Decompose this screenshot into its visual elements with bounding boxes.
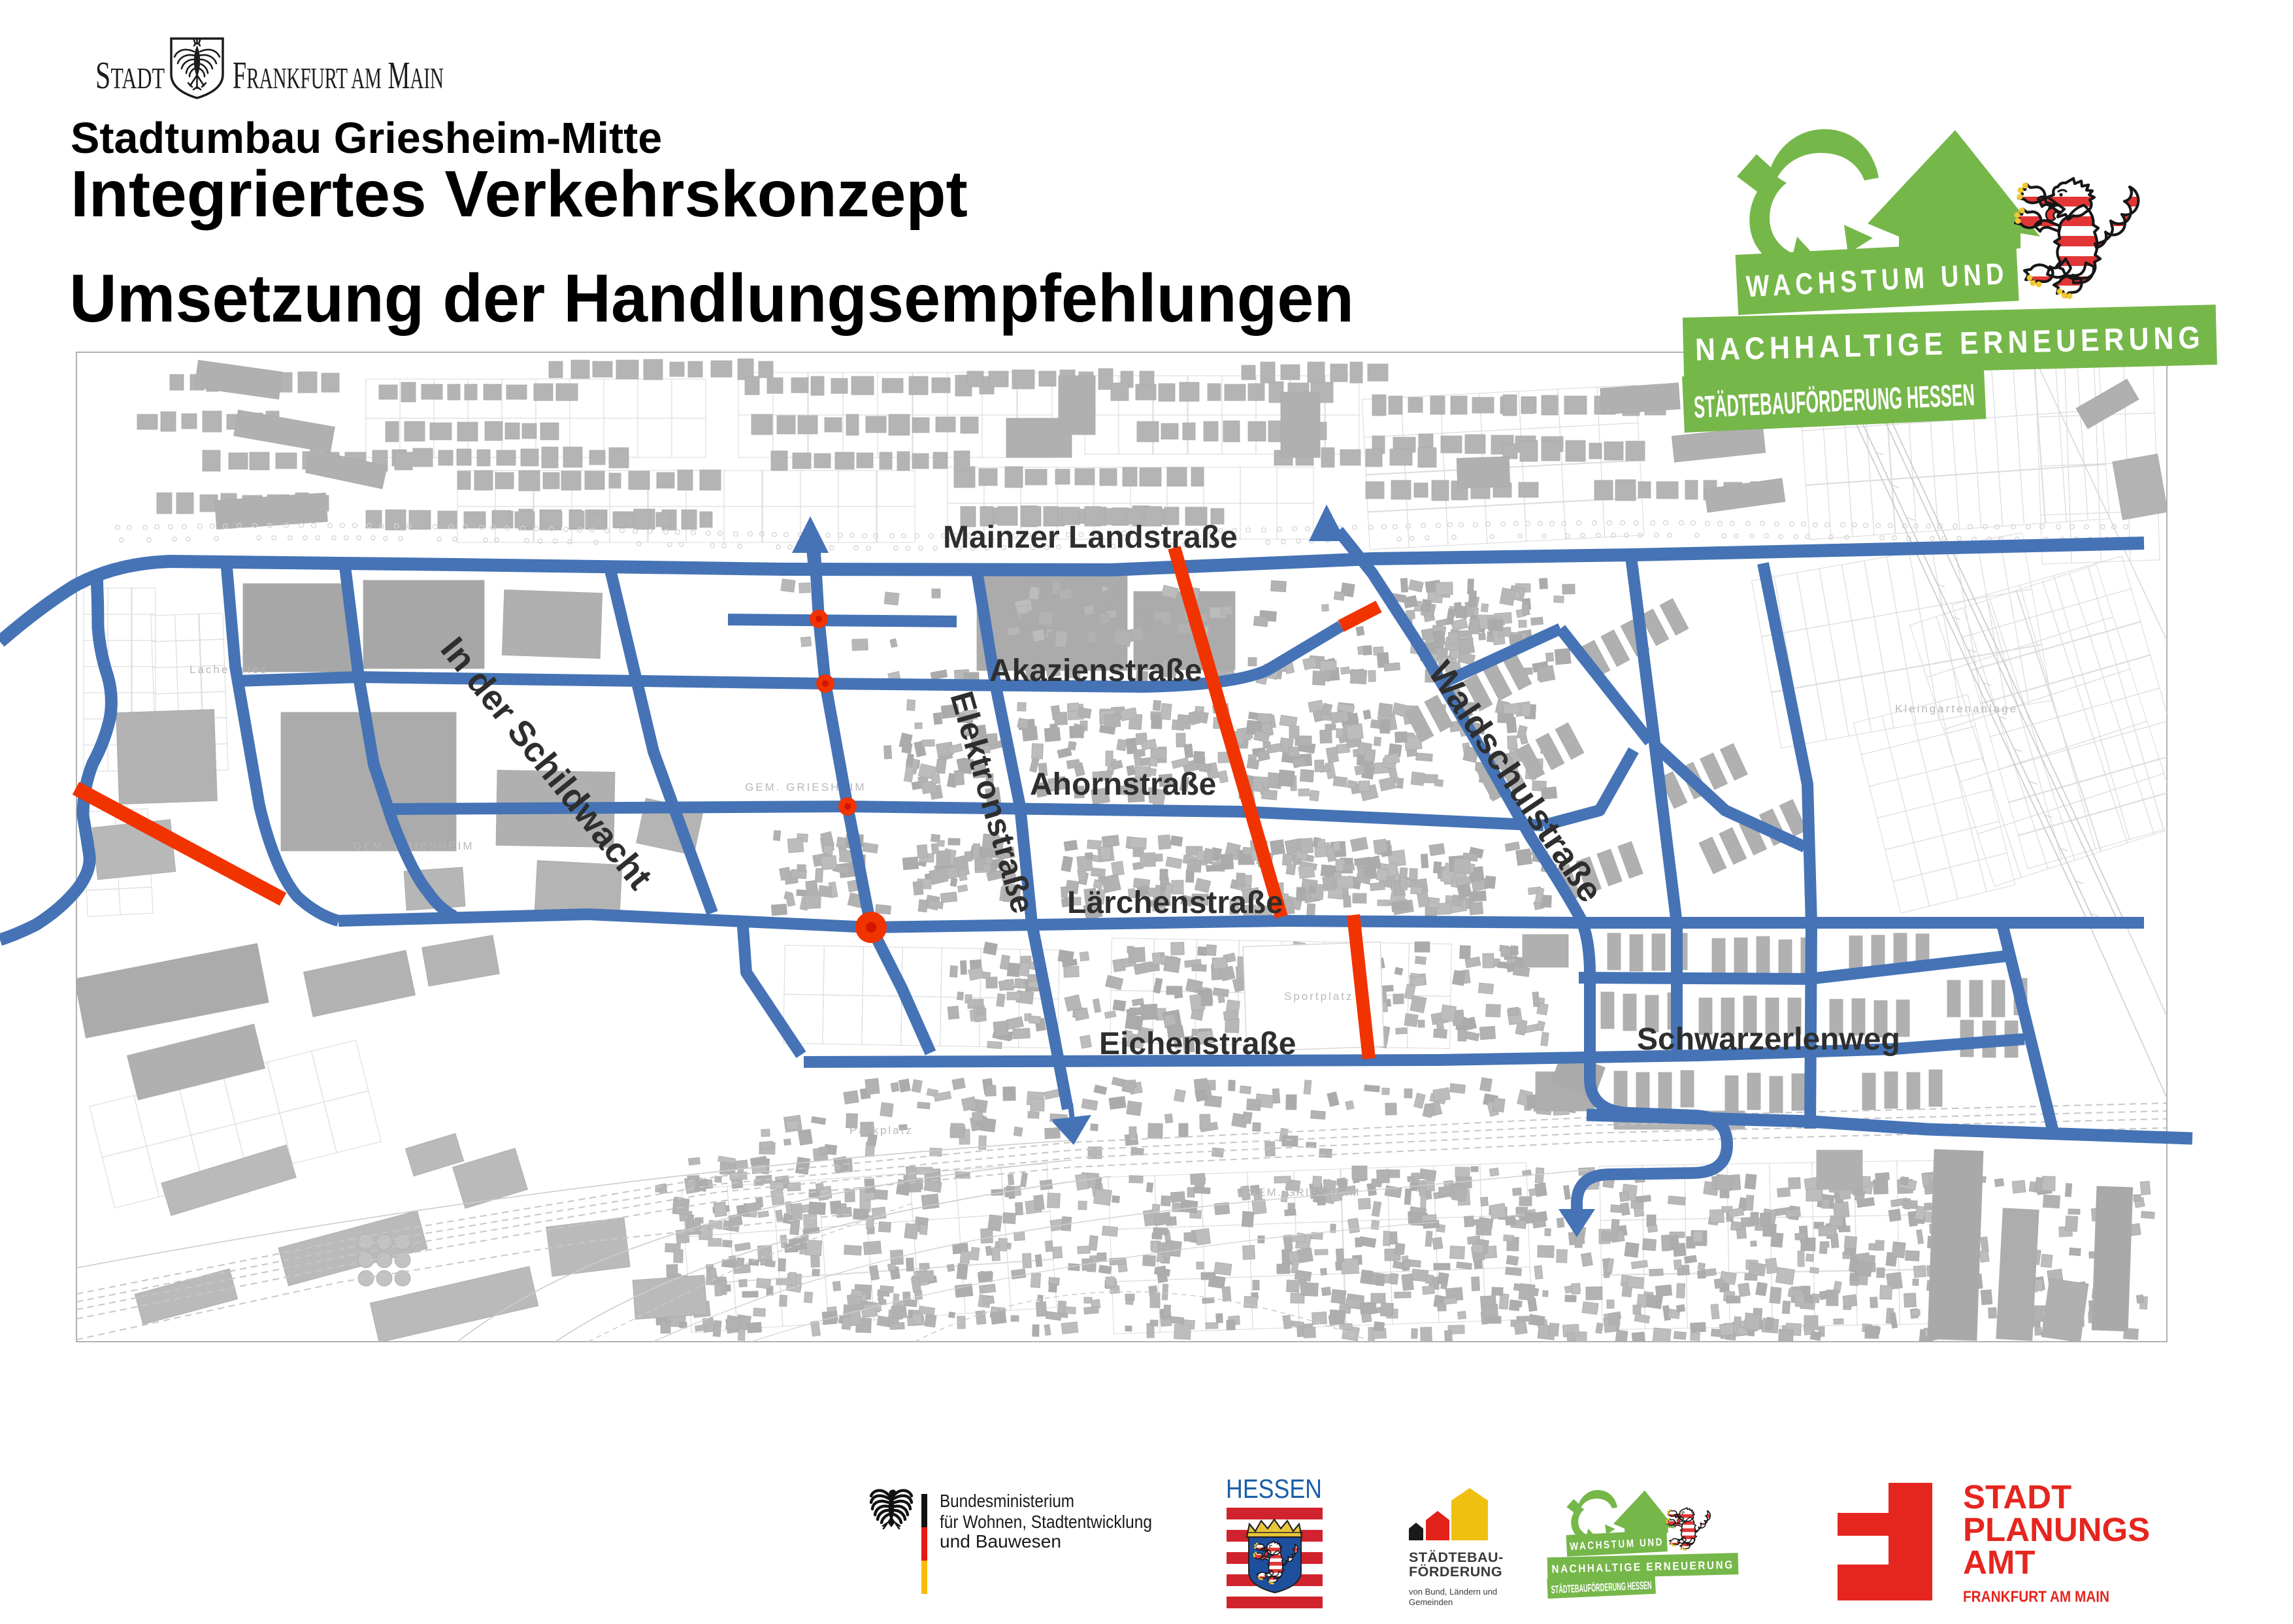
svg-text:Lärchenstraße: Lärchenstraße [1067,886,1283,920]
svg-text:und Bauwesen: und Bauwesen [940,1531,1061,1551]
svg-text:Ahornstraße: Ahornstraße [1030,767,1216,802]
svg-text:FÖRDERUNG: FÖRDERUNG [1409,1563,1502,1580]
svg-text:Stadtumbau Griesheim-Mitte: Stadtumbau Griesheim-Mitte [71,114,662,163]
svg-text:von Bund, Ländern und: von Bund, Ländern und [1409,1587,1497,1597]
svg-text:Parkplatz: Parkplatz [850,1124,914,1136]
svg-text:für Wohnen, Stadtentwicklung: für Wohnen, Stadtentwicklung [940,1512,1152,1532]
svg-text:GEM. GRIESHEIM: GEM. GRIESHEIM [353,840,474,852]
svg-text:Eichenstraße: Eichenstraße [1099,1027,1296,1061]
svg-text:Umsetzung der Handlungsempfehl: Umsetzung der Handlungsempfehlungen [69,261,1354,337]
svg-text:Sportplatz: Sportplatz [1284,990,1354,1003]
svg-text:Integriertes Verkehrskonzept: Integriertes Verkehrskonzept [71,157,968,231]
svg-text:Mainzer Landstraße: Mainzer Landstraße [943,520,1238,555]
svg-text:PLANUNGS: PLANUNGS [1963,1511,2150,1548]
svg-text:Lachenwies: Lachenwies [190,663,268,676]
svg-text:STADT: STADT [1963,1478,2071,1516]
svg-text:FRANKFURT AM MAIN: FRANKFURT AM MAIN [1963,1588,2109,1606]
svg-text:Kleingartenanlage: Kleingartenanlage [1895,703,2018,715]
svg-text:Schwarzerlenweg: Schwarzerlenweg [1637,1022,1900,1057]
svg-text:Gemeinden: Gemeinden [1409,1597,1453,1607]
svg-text:GEM. GRIESHEIM: GEM. GRIESHEIM [1248,1186,1361,1199]
svg-text:STÄDTEBAU-: STÄDTEBAU- [1409,1549,1504,1565]
svg-text:Bundesministerium: Bundesministerium [940,1491,1074,1511]
svg-text:HESSEN: HESSEN [1226,1474,1322,1504]
svg-text:Akazienstraße: Akazienstraße [989,654,1202,688]
svg-text:AMT: AMT [1963,1544,2035,1581]
